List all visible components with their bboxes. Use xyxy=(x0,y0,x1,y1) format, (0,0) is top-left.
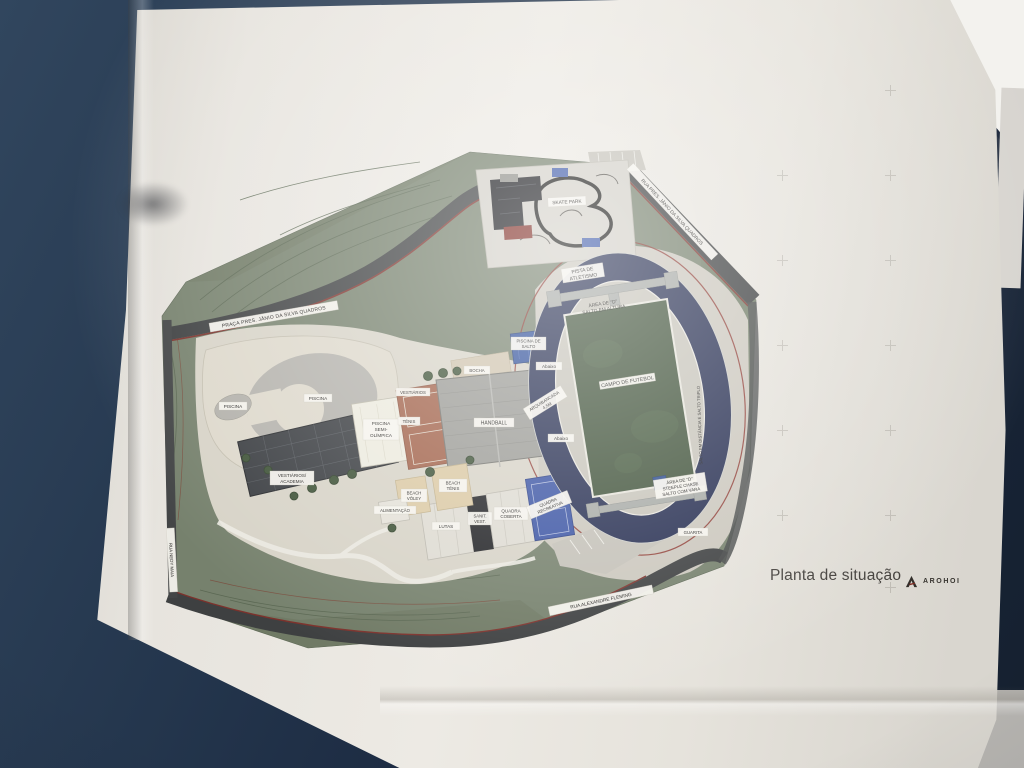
label-bocha: BOCHA xyxy=(464,366,490,374)
skate-blue-feature xyxy=(582,238,600,247)
label-text: OLÍMPICA xyxy=(370,432,393,438)
label-text: LUTAS xyxy=(439,524,453,529)
label-text: SALTO xyxy=(522,344,536,349)
label-beach-tenis: BEACH TÊNIS xyxy=(439,479,467,492)
skate-park xyxy=(476,160,636,268)
label-alimentacao: ALIMENTAÇÃO xyxy=(374,506,416,514)
label-text: TÊNIS xyxy=(447,486,460,491)
label-text: PISCINA DE xyxy=(516,339,540,344)
label-piscina-pequena: PISCINA xyxy=(219,402,247,410)
label-text: SEMI- xyxy=(375,427,388,432)
label-text: VEST. xyxy=(474,519,486,524)
label-abaixo-2: Abaixo xyxy=(548,434,574,442)
label-text: BEACH xyxy=(407,491,422,496)
label-vest-academia: VESTIÁRIOS/ ACADEMIA xyxy=(270,471,314,485)
brand-logo: AROHOI xyxy=(905,575,961,588)
label-piscina-semi: PISCINA SEMI- OLÍMPICA xyxy=(363,419,399,440)
label-piscina-salto: PISCINA DE SALTO xyxy=(511,337,546,350)
label-piscina-grande: PISCINA xyxy=(304,394,332,402)
label-abaixo-1: Abaixo xyxy=(536,362,562,370)
label-handball: HANDBALL xyxy=(474,418,514,427)
label-sanit-vest: SANIT. VEST. xyxy=(468,512,492,525)
label-beach-voley: BEACH VÔLEY xyxy=(401,489,427,502)
label-text: VÔLEY xyxy=(407,496,421,501)
label-text: PISCINA xyxy=(372,421,391,426)
label-text: GUARITA xyxy=(684,530,703,535)
label-text: TÊNIS xyxy=(403,419,416,424)
label-text: SANIT. xyxy=(473,514,486,519)
label-text: VESTIÁRIOS xyxy=(400,390,426,395)
label-text: ACADEMIA xyxy=(280,479,304,484)
brand-name: AROHOI xyxy=(923,578,961,585)
label-text: Abaixo xyxy=(554,436,568,441)
label-lutas: LUTAS xyxy=(432,522,460,530)
label-text: QUADRA xyxy=(501,509,520,514)
label-text: VESTIÁRIOS/ xyxy=(278,472,307,478)
label-vestiarios: VESTIÁRIOS xyxy=(396,388,430,396)
label-text: ALIMENTAÇÃO xyxy=(380,508,410,513)
label-text: PISCINA xyxy=(224,404,243,409)
site-plan-drawing: PISTA DE ATLETISMO ÁREA DE "D" SALTO EM … xyxy=(0,0,1024,768)
label-tenis: TÊNIS xyxy=(398,417,420,425)
label-guarita: GUARITA xyxy=(678,528,708,536)
label-text: BEACH xyxy=(446,481,461,486)
label-skate-park: SKATE PARK xyxy=(548,196,586,207)
skate-blue-feature xyxy=(552,168,568,177)
photo-of-site-plan: PISTA DE ATLETISMO ÁREA DE "D" SALTO EM … xyxy=(0,0,1024,768)
label-text: PISCINA xyxy=(309,396,328,401)
label-quadra-coberta: QUADRA COBERTA xyxy=(494,507,528,520)
skate-red-feature xyxy=(504,225,533,240)
a-monogram-icon xyxy=(905,575,918,588)
plan-title: Planta de situação xyxy=(770,567,901,585)
label-text: Abaixo xyxy=(542,364,556,369)
label-text: BOCHA xyxy=(469,368,484,373)
label-text: HANDBALL xyxy=(481,421,508,427)
label-text: COBERTA xyxy=(500,514,521,519)
